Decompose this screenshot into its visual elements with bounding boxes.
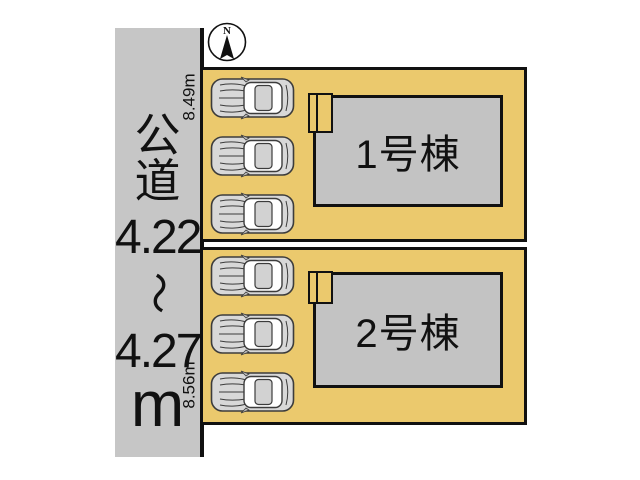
car-icon <box>210 312 295 356</box>
plot-2: 2号棟 <box>200 247 527 425</box>
building-2-label: 2号棟 <box>355 301 460 359</box>
building-1-entrance <box>308 93 333 133</box>
car-icon <box>210 76 295 120</box>
road-width-range-symbol: ～ <box>137 251 179 336</box>
building-2-entrance <box>308 271 333 304</box>
car-icon <box>210 370 295 414</box>
building-1-label: 1号棟 <box>355 122 460 180</box>
north-arrow-icon: N <box>207 21 247 63</box>
car-icon <box>210 192 295 236</box>
frontage-label-1: 8.49m <box>181 68 199 126</box>
site-plan: 公 道 4.22 ～ 4.27 m N <box>0 0 640 480</box>
car-icon <box>210 254 295 298</box>
entrance-door <box>310 273 318 302</box>
car-icon <box>210 134 295 178</box>
plot-1: 1号棟 <box>200 67 527 242</box>
road-label-kanji-2: 道 <box>115 158 200 204</box>
entrance-door <box>310 95 318 131</box>
frontage-label-2: 8.56m <box>181 356 199 414</box>
building-2: 2号棟 <box>313 272 503 388</box>
building-1: 1号棟 <box>313 95 503 207</box>
